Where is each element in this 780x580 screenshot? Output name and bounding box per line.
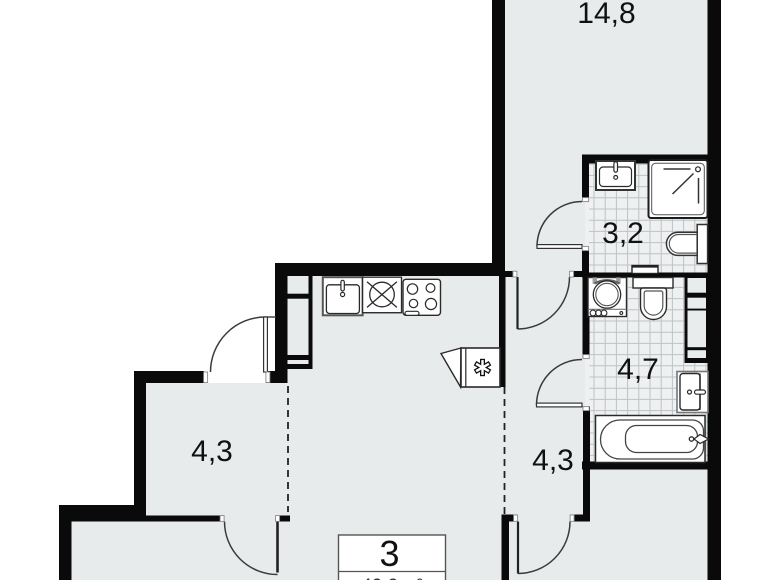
svg-text:4,3: 4,3 bbox=[191, 435, 233, 468]
svg-text:14,8: 14,8 bbox=[577, 0, 635, 30]
svg-text:3,2: 3,2 bbox=[602, 217, 644, 250]
svg-text:4,7: 4,7 bbox=[617, 353, 659, 386]
svg-text:4,3: 4,3 bbox=[532, 444, 574, 477]
svg-text:3: 3 bbox=[379, 533, 399, 574]
svg-text:40,2 м²: 40,2 м² bbox=[361, 576, 423, 580]
